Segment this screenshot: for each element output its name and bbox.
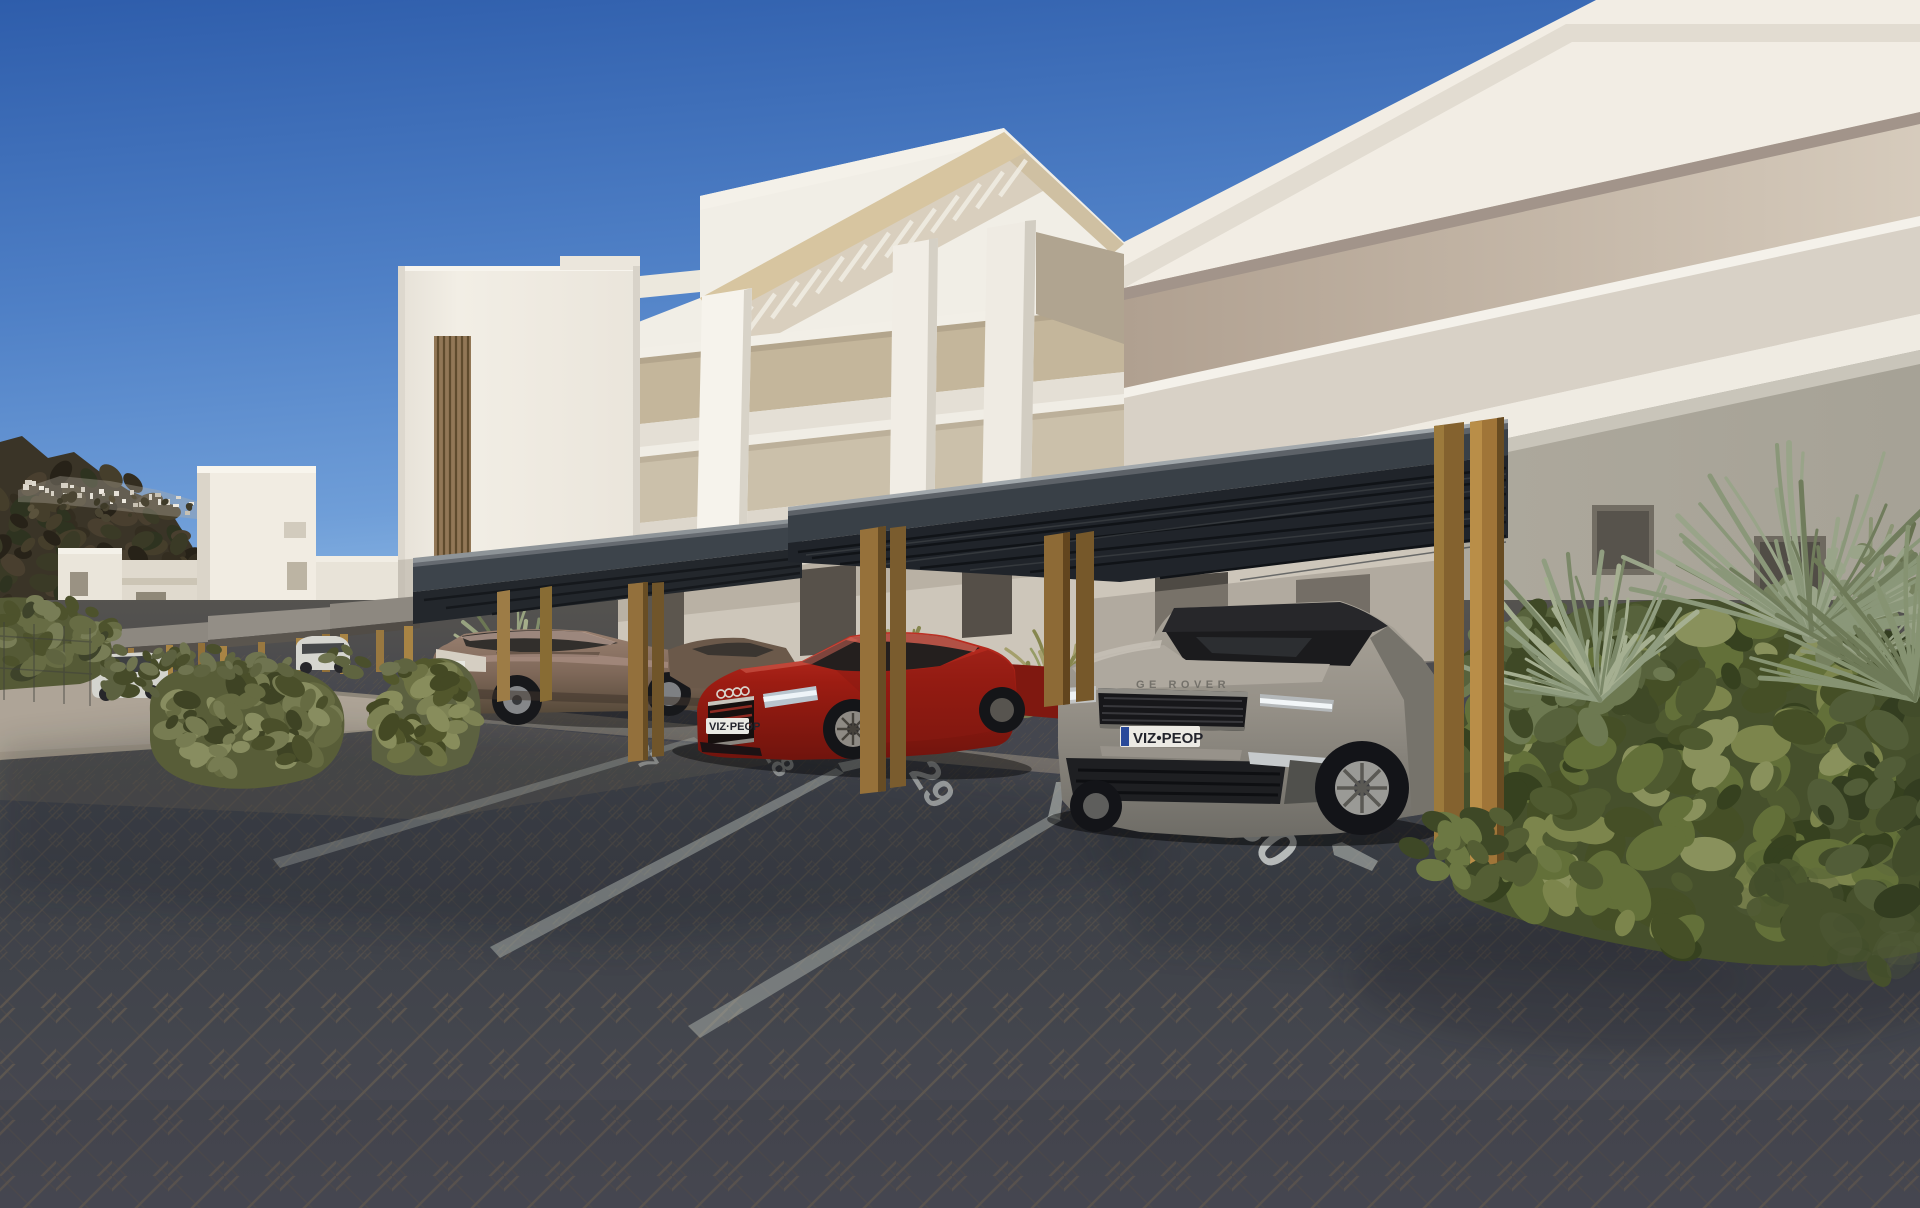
svg-text:VIZ•PEOP: VIZ•PEOP [1133, 730, 1203, 747]
svg-text:VIZ·PEOP: VIZ·PEOP [709, 721, 760, 733]
svg-text:GE ROVER: GE ROVER [1136, 679, 1230, 691]
